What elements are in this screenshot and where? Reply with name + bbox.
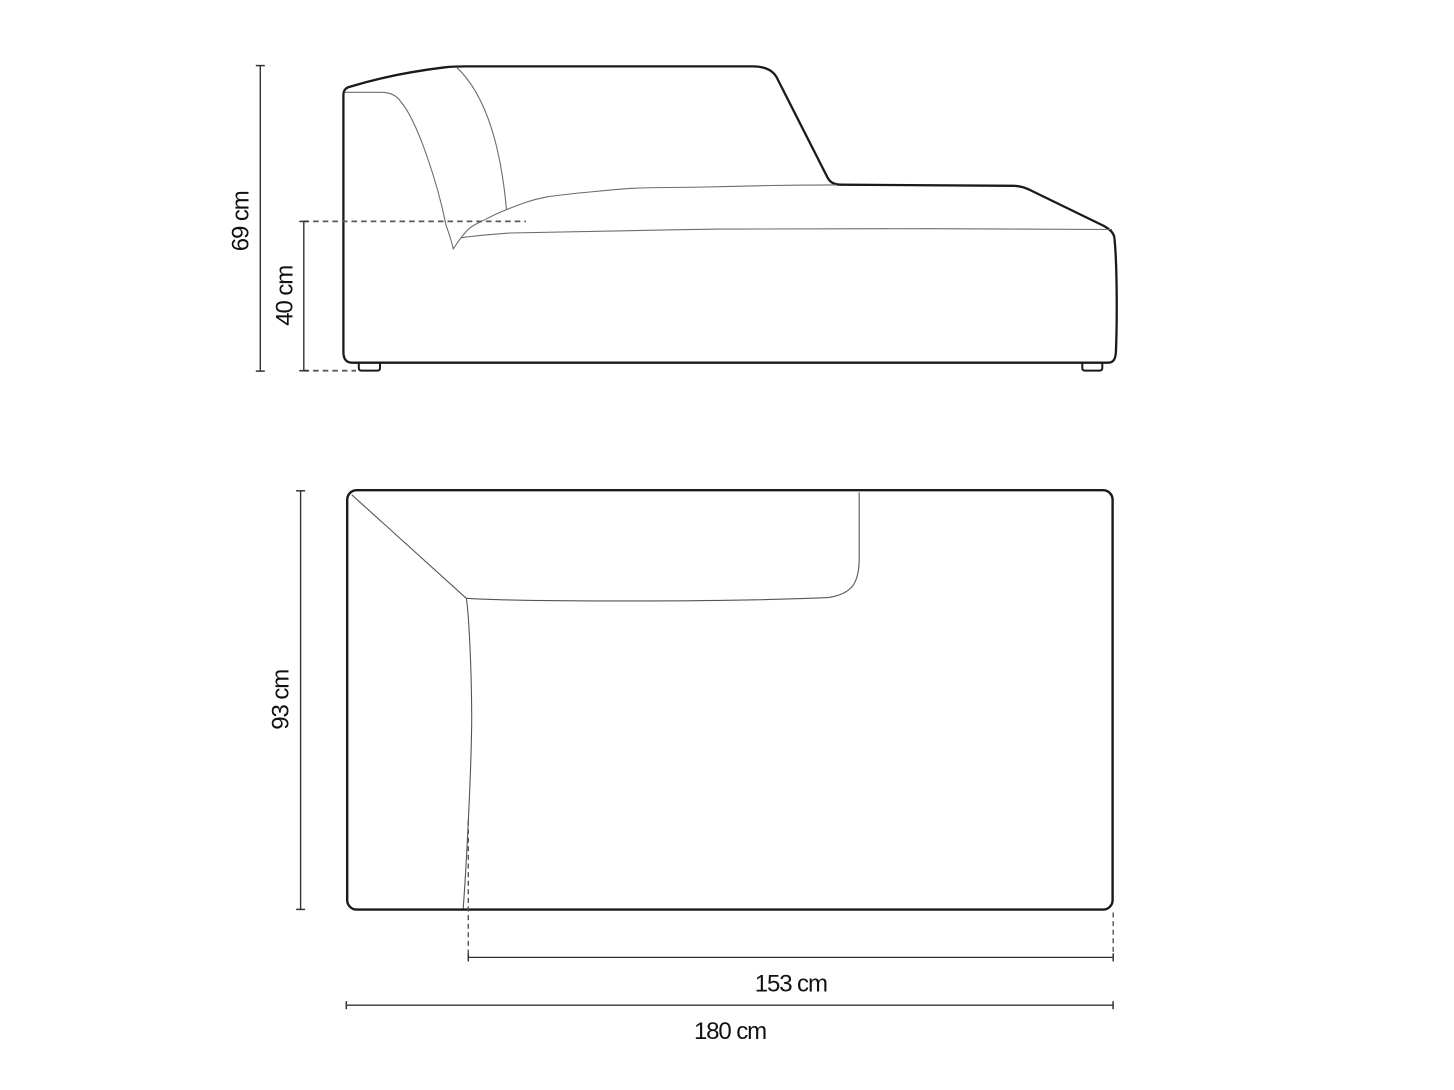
svg-text:93 cm: 93 cm <box>268 670 295 730</box>
svg-text:69 cm: 69 cm <box>228 191 255 251</box>
svg-text:153 cm: 153 cm <box>755 971 827 998</box>
svg-text:180 cm: 180 cm <box>694 1018 766 1045</box>
svg-text:40 cm: 40 cm <box>272 266 299 326</box>
